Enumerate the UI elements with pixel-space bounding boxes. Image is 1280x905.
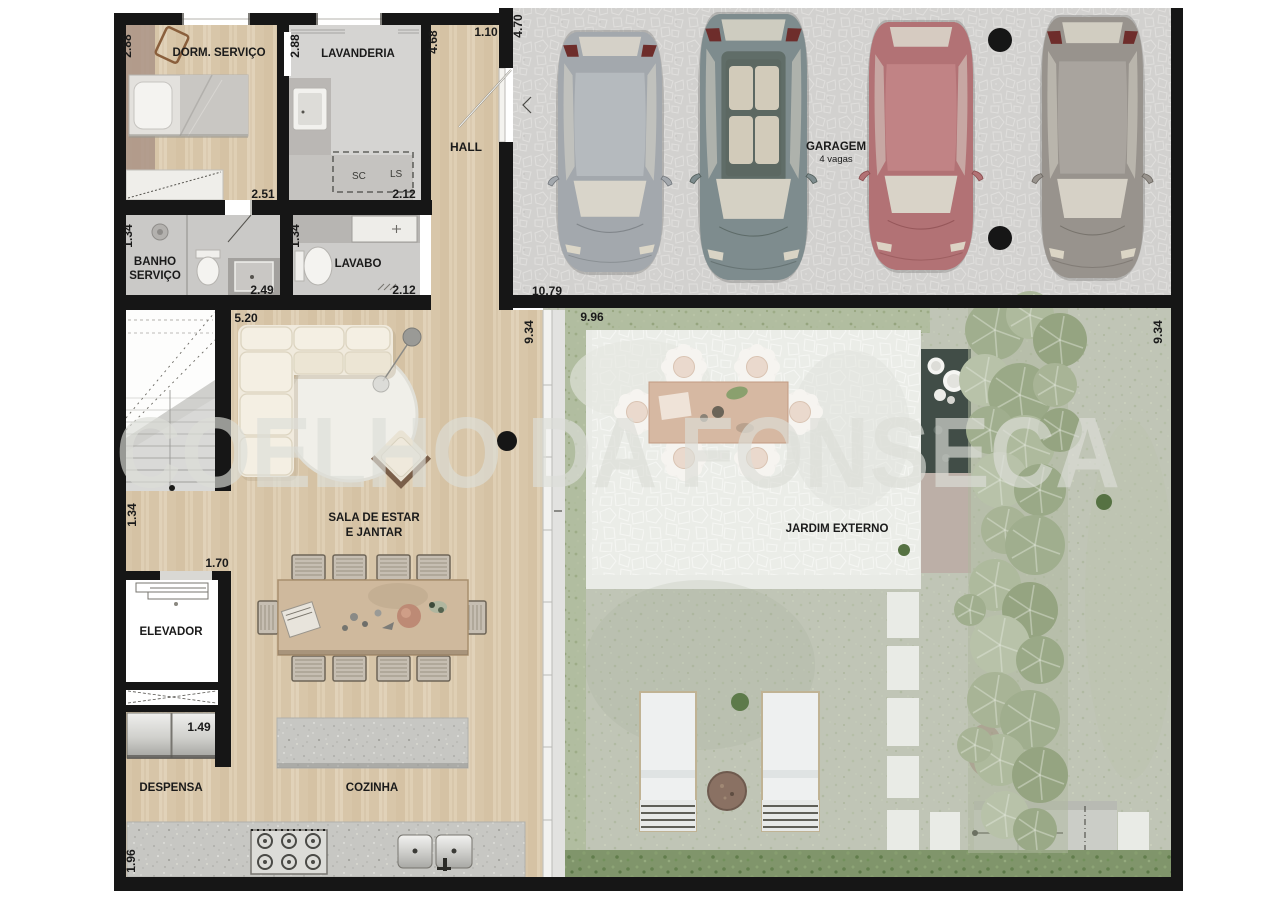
svg-text:2.51: 2.51 [251,187,275,201]
svg-text:2.88: 2.88 [288,34,302,58]
svg-text:10.79: 10.79 [532,284,562,298]
svg-text:COELHO DA FONSECA: COELHO DA FONSECA [116,397,1120,509]
svg-text:2.49: 2.49 [250,283,274,297]
svg-text:GARAGEM: GARAGEM [806,141,866,153]
svg-text:LAVABO: LAVABO [335,258,382,270]
svg-text:2.88: 2.88 [120,34,134,58]
svg-text:DESPENSA: DESPENSA [139,782,202,794]
svg-text:2.12: 2.12 [392,187,416,201]
svg-text:4.70: 4.70 [511,14,525,38]
svg-text:1.96: 1.96 [124,849,138,873]
svg-text:E JANTAR: E JANTAR [346,527,403,539]
svg-text:1.34: 1.34 [288,224,302,248]
svg-text:SERVIÇO: SERVIÇO [129,270,181,282]
svg-text:SC: SC [352,171,366,182]
svg-text:BANHO: BANHO [134,256,176,268]
svg-text:1.49: 1.49 [187,720,211,734]
svg-text:ELEVADOR: ELEVADOR [139,626,203,638]
svg-text:SALA DE ESTAR: SALA DE ESTAR [328,512,420,524]
svg-text:COZINHA: COZINHA [346,782,398,794]
svg-text:HALL: HALL [450,140,482,154]
svg-text:LS: LS [390,169,403,180]
svg-text:9.34: 9.34 [1151,320,1165,344]
svg-text:1.34: 1.34 [121,224,135,248]
svg-text:4.68: 4.68 [426,30,440,54]
svg-text:1.10: 1.10 [474,25,498,39]
svg-text:2.12: 2.12 [392,283,416,297]
svg-text:1.70: 1.70 [205,556,229,570]
svg-text:5.20: 5.20 [234,311,258,325]
svg-text:LAVANDERIA: LAVANDERIA [321,48,395,60]
svg-text:9.34: 9.34 [522,320,536,344]
svg-text:9.96: 9.96 [580,310,604,324]
svg-text:4 vagas: 4 vagas [819,154,853,165]
svg-text:JARDIM EXTERNO: JARDIM EXTERNO [786,523,889,535]
svg-text:DORM. SERVIÇO: DORM. SERVIÇO [172,47,265,59]
